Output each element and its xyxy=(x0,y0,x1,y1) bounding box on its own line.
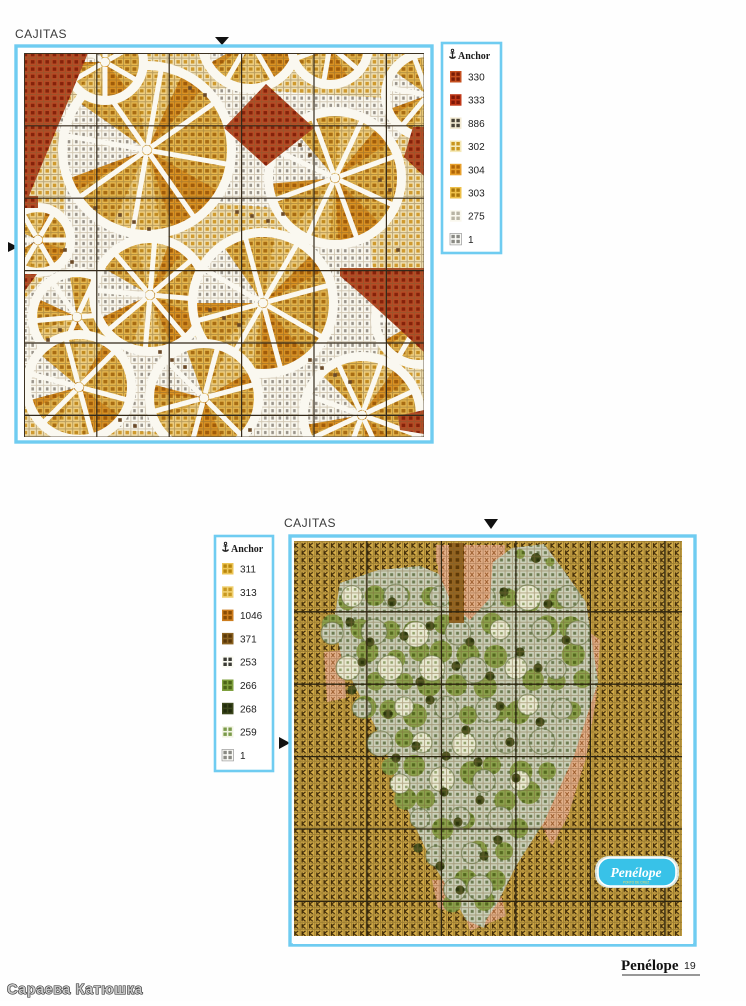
svg-text:Сараева Катюшка: Сараева Катюшка xyxy=(7,982,143,998)
svg-text:CAJITAS: CAJITAS xyxy=(15,27,67,41)
svg-text:333: 333 xyxy=(468,96,485,107)
svg-text:303: 303 xyxy=(468,189,485,200)
svg-text:Anchor: Anchor xyxy=(231,544,264,555)
svg-text:311: 311 xyxy=(240,565,256,576)
svg-text:Penélope: Penélope xyxy=(621,958,679,974)
svg-text:1: 1 xyxy=(240,751,246,762)
svg-text:371: 371 xyxy=(240,634,257,645)
svg-text:1: 1 xyxy=(468,235,474,246)
svg-text:266: 266 xyxy=(240,681,257,692)
svg-text:304: 304 xyxy=(468,165,485,176)
svg-text:Anchor: Anchor xyxy=(458,51,491,62)
svg-text:253: 253 xyxy=(240,658,257,669)
svg-text:CAJITAS: CAJITAS xyxy=(284,516,336,530)
svg-text:1046: 1046 xyxy=(240,611,263,622)
svg-text:302: 302 xyxy=(468,142,485,153)
svg-text:259: 259 xyxy=(240,728,257,739)
svg-text:19: 19 xyxy=(684,960,696,972)
svg-text:275: 275 xyxy=(468,212,485,223)
svg-text:886: 886 xyxy=(468,119,485,130)
svg-text:268: 268 xyxy=(240,704,257,715)
svg-text:330: 330 xyxy=(468,73,485,84)
svg-text:313: 313 xyxy=(240,588,257,599)
svg-text:PONTO DE CRUZ: PONTO DE CRUZ xyxy=(623,881,649,885)
svg-text:Penélope: Penélope xyxy=(611,865,662,880)
